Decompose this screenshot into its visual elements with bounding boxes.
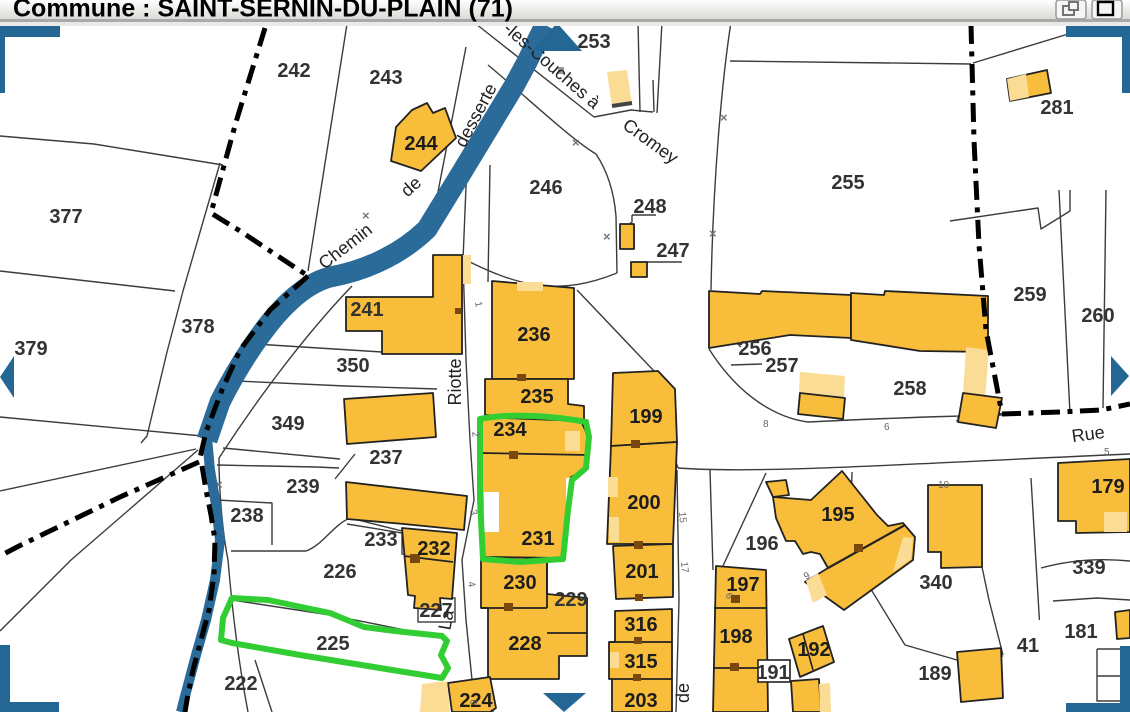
svg-text:5: 5 [1104,447,1110,458]
svg-text:246: 246 [529,177,562,199]
svg-text:236: 236 [517,324,550,346]
svg-text:41: 41 [1017,635,1039,657]
svg-text:378: 378 [181,316,214,338]
svg-text:233: 233 [364,529,397,551]
svg-text:239: 239 [286,476,319,498]
svg-text:349: 349 [271,413,304,435]
svg-text:377: 377 [49,206,82,228]
svg-text:200: 200 [627,492,660,514]
svg-text:379: 379 [14,338,47,360]
svg-text:259: 259 [1013,284,1046,306]
svg-text:Commune : SAINT-SERNIN-DU-PLAI: Commune : SAINT-SERNIN-DU-PLAIN (71) [13,0,513,23]
svg-text:191: 191 [756,662,789,684]
svg-text:×: × [603,229,611,244]
svg-text:339: 339 [1072,557,1105,579]
svg-text:244: 244 [404,133,438,155]
svg-text:×: × [572,135,580,150]
svg-text:243: 243 [369,67,402,89]
svg-text:316: 316 [624,614,657,636]
svg-text:247: 247 [656,240,689,262]
svg-text:248: 248 [633,196,666,218]
svg-text:181: 181 [1064,621,1097,643]
svg-text:234: 234 [493,419,527,441]
svg-text:237: 237 [369,447,402,469]
svg-text:15: 15 [676,511,688,523]
svg-text:203: 203 [624,690,657,712]
svg-text:232: 232 [417,538,450,560]
svg-text:17: 17 [678,561,690,573]
svg-text:195: 195 [821,504,854,526]
svg-text:192: 192 [797,639,830,661]
svg-text:×: × [720,110,728,125]
svg-text:Riotte: Riotte [445,358,465,405]
svg-text:350: 350 [336,355,369,377]
svg-text:340: 340 [919,572,952,594]
svg-text:281: 281 [1040,97,1073,119]
svg-text:228: 228 [508,633,541,655]
svg-text:241: 241 [350,299,383,321]
svg-text:189: 189 [918,663,951,685]
svg-text:238: 238 [230,505,263,527]
svg-text:198: 198 [719,626,752,648]
svg-text:229: 229 [554,589,587,611]
svg-text:231: 231 [521,528,554,550]
svg-text:260: 260 [1081,305,1114,327]
svg-text:242: 242 [277,60,310,82]
svg-text:226: 226 [323,561,356,583]
svg-text:199: 199 [629,406,662,428]
svg-text:196: 196 [745,533,778,555]
svg-text:179: 179 [1091,476,1124,498]
svg-text:230: 230 [503,572,536,594]
svg-text:201: 201 [625,561,658,583]
svg-text:235: 235 [520,386,553,408]
svg-text:255: 255 [831,172,864,194]
svg-text:258: 258 [893,378,926,400]
svg-text:225: 225 [316,633,349,655]
svg-text:6: 6 [884,422,890,433]
svg-text:257: 257 [765,355,798,377]
svg-text:315: 315 [624,651,657,673]
svg-text:de: de [673,683,693,703]
svg-text:8: 8 [763,419,769,430]
svg-text:×: × [709,226,717,241]
svg-text:10: 10 [938,480,950,491]
svg-text:253: 253 [577,31,610,53]
svg-text:222: 222 [224,673,257,695]
